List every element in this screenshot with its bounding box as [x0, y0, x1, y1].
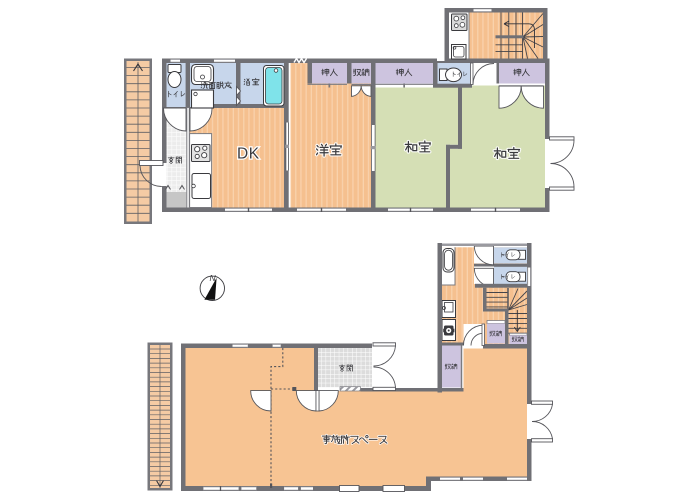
- svg-text:DK: DK: [237, 146, 260, 163]
- svg-text:N: N: [210, 273, 217, 283]
